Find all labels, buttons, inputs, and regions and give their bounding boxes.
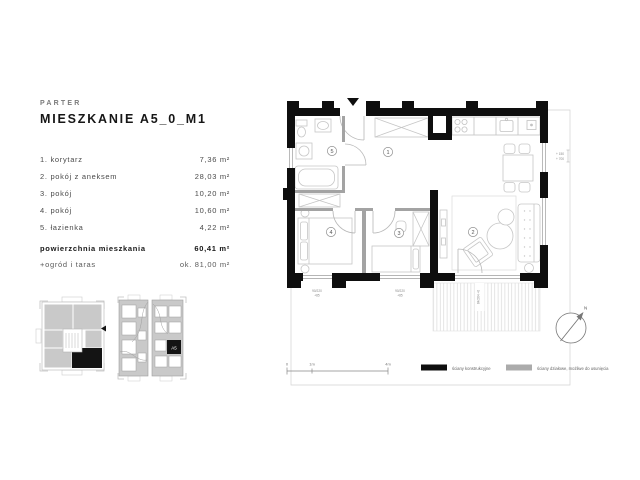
faucet xyxy=(505,118,507,120)
legend-partition-label: ściany działowe, możliwe do usunięcia xyxy=(537,366,609,371)
partition-walls xyxy=(295,116,430,273)
total-area-row: powierzchnia mieszkania 60,41 m² xyxy=(40,244,230,253)
legend-structural-swatch xyxy=(421,365,447,371)
room-row: 5. łazienka 4,22 m² xyxy=(40,223,230,232)
terrace-door xyxy=(458,249,482,273)
sofa xyxy=(518,204,540,262)
building-location-thumbnail xyxy=(36,297,106,375)
apartment-title: MIESZKANIE A5_0_M1 xyxy=(40,112,230,126)
location-thumbnails: A5 xyxy=(34,292,230,388)
double-bed xyxy=(298,218,352,264)
pillow xyxy=(301,242,308,260)
svg-text:1: 1 xyxy=(386,150,389,156)
coffee-table xyxy=(498,209,514,225)
window xyxy=(303,276,332,279)
kitchen-sink xyxy=(500,121,513,132)
right-window-note: + 150 + 700 xyxy=(556,150,570,162)
svg-text:1m: 1m xyxy=(309,362,315,367)
chair xyxy=(519,144,530,154)
room4-furniture xyxy=(298,209,352,273)
stove-burners xyxy=(455,119,467,132)
structural-walls xyxy=(283,101,548,288)
svg-text:2: 2 xyxy=(471,230,474,236)
garden-area-row: +ogród i taras ok. 81,00 m² xyxy=(40,260,230,269)
washing-machine xyxy=(296,143,312,159)
site-plan-thumbnail: A5 xyxy=(118,295,186,381)
corridor-wardrobes xyxy=(299,118,428,207)
room-area: 28,03 m² xyxy=(195,172,230,181)
legend-partition-swatch xyxy=(506,365,532,371)
building-marker-label: A5 xyxy=(171,346,177,351)
legend: ściany konstrukcyjne ściany działowe, mo… xyxy=(421,365,609,371)
legend-structural-label: ściany konstrukcyjne xyxy=(452,366,491,371)
sofa-tufting xyxy=(524,210,531,256)
room-name: 2. pokój z aneksem xyxy=(40,172,117,181)
room-number-badge: 1 xyxy=(383,147,392,156)
room-number-badge: 2 xyxy=(468,227,477,236)
nightstand xyxy=(301,265,309,273)
total-area-value: 60,41 m² xyxy=(194,244,230,253)
window xyxy=(543,143,546,172)
room-number-badge: 5 xyxy=(327,146,336,155)
room-name: 3. pokój xyxy=(40,189,72,198)
room3-furniture xyxy=(372,212,429,272)
room3-door xyxy=(373,211,395,233)
room-list: 1. korytarz 7,36 m² 2. pokój z aneksem 2… xyxy=(40,155,230,232)
room-row: 4. pokój 10,60 m² xyxy=(40,206,230,215)
garden-area-label: +ogród i taras xyxy=(40,260,96,269)
room-area: 10,20 m² xyxy=(195,189,230,198)
svg-text:5: 5 xyxy=(330,149,333,155)
total-area-label: powierzchnia mieszkania xyxy=(40,244,146,253)
scale-bar: 0 1m 4m xyxy=(286,362,392,375)
chair xyxy=(504,144,515,154)
svg-text:4m: 4m xyxy=(385,362,391,367)
svg-text:3: 3 xyxy=(397,231,400,237)
room-badges: 1 2 3 4 5 xyxy=(326,146,477,237)
room-area: 4,22 m² xyxy=(200,223,230,232)
room-row: 1. korytarz 7,36 m² xyxy=(40,155,230,164)
bathroom-door xyxy=(345,144,366,165)
svg-text:+85: +85 xyxy=(397,294,403,298)
window xyxy=(290,148,293,168)
doors xyxy=(333,116,482,273)
entrance-marker-icon xyxy=(347,98,359,106)
room-row: 2. pokój z aneksem 28,03 m² xyxy=(40,172,230,181)
terrace-glazing xyxy=(455,276,520,279)
side-table xyxy=(525,264,534,273)
room-row: 3. pokój 10,20 m² xyxy=(40,189,230,198)
svg-text:+85: +85 xyxy=(314,294,320,298)
room-name: 5. łazienka xyxy=(40,223,84,232)
pillow xyxy=(413,249,419,269)
kitchen-counter xyxy=(452,117,540,135)
toilet-bowl xyxy=(298,127,306,137)
room-name: 4. pokój xyxy=(40,206,72,215)
toilet-tank xyxy=(296,120,307,126)
window xyxy=(380,276,420,279)
svg-text:90/220: 90/220 xyxy=(312,289,322,293)
north-indicator: N xyxy=(556,306,587,344)
tv-bench xyxy=(440,210,447,258)
room2-furniture xyxy=(440,144,540,273)
pillow xyxy=(301,222,308,240)
terrace-decking xyxy=(433,283,540,331)
floor-label: PARTER xyxy=(40,100,230,107)
info-panel: PARTER MIESZKANIE A5_0_M1 1. korytarz 7,… xyxy=(40,100,230,269)
svg-text:+ 700: + 700 xyxy=(556,157,564,161)
room-area: 7,36 m² xyxy=(200,155,230,164)
north-label: N xyxy=(584,306,587,311)
bathtub xyxy=(295,166,338,189)
svg-text:+ 150: + 150 xyxy=(556,152,564,156)
shaft-void xyxy=(433,116,446,133)
room-name: 1. korytarz xyxy=(40,155,83,164)
coffee-table xyxy=(487,223,513,249)
svg-text:84/264 +0: 84/264 +0 xyxy=(477,290,481,304)
dining-table xyxy=(503,155,533,181)
garden-area-value: ok. 81,00 m² xyxy=(180,260,230,269)
chair xyxy=(519,183,530,193)
floor-plan: 1 2 3 4 5 90/220 +85 90/220 +85 84/264 +… xyxy=(283,95,625,395)
svg-text:0: 0 xyxy=(286,362,289,367)
svg-text:4: 4 xyxy=(329,230,332,236)
room-area: 10,60 m² xyxy=(195,206,230,215)
svg-text:90/220: 90/220 xyxy=(395,289,405,293)
chair xyxy=(504,183,515,193)
room-number-badge: 4 xyxy=(326,227,335,236)
room-number-badge: 3 xyxy=(394,228,403,237)
window xyxy=(543,198,546,245)
